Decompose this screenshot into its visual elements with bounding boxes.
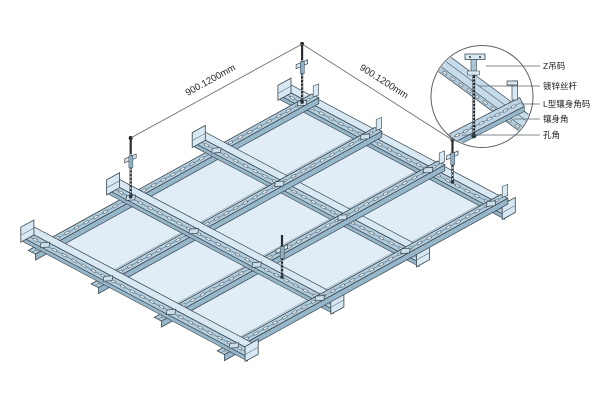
ceiling-isometric-diagram: 900.1200mm900.1200mmZ吊码镀锌丝杆L型镶身角码镶身角孔角: [0, 0, 600, 403]
rail-connector: [315, 296, 325, 301]
panel-layer: [49, 105, 488, 343]
rail-connector: [275, 181, 285, 186]
rail-connector: [486, 201, 496, 206]
rod-nut: [280, 275, 284, 279]
callout-label: Z吊码: [543, 61, 565, 71]
rod-nut: [451, 180, 455, 184]
diagram-canvas: 900.1200mm900.1200mmZ吊码镀锌丝杆L型镶身角码镶身角孔角: [0, 0, 600, 403]
rail-connector: [401, 248, 411, 253]
rail-end-bracket: [376, 117, 382, 130]
rail-connector: [338, 215, 348, 220]
rail-end-bracket: [439, 151, 445, 164]
callout-label: 镀锌丝杆: [543, 81, 578, 91]
callout-label: 镶身角: [543, 114, 569, 124]
rod-nut: [129, 195, 133, 199]
perforation-hole: [435, 66, 439, 69]
rail-connector: [103, 276, 113, 281]
rail-connector: [189, 229, 199, 234]
rail-connector: [252, 262, 262, 267]
rail-connector: [212, 148, 222, 153]
rod-nut: [300, 100, 304, 104]
rod-nut: [471, 134, 476, 139]
detail-view: [430, 46, 536, 148]
dimension-label-left: 900.1200mm: [184, 62, 238, 98]
perforation-hole: [435, 66, 438, 68]
rail-connector: [166, 309, 176, 314]
rail-connector: [40, 242, 50, 247]
callout-label: 孔角: [543, 130, 560, 140]
callout-label: L型镶身角码: [543, 99, 590, 109]
rail-end-bracket: [502, 184, 508, 197]
rail-end-bracket: [313, 84, 319, 97]
rail-connector: [229, 343, 239, 348]
z-hanger-clip-detail: [465, 54, 485, 60]
rail-connector: [423, 167, 433, 172]
rail-connector: [360, 134, 370, 139]
